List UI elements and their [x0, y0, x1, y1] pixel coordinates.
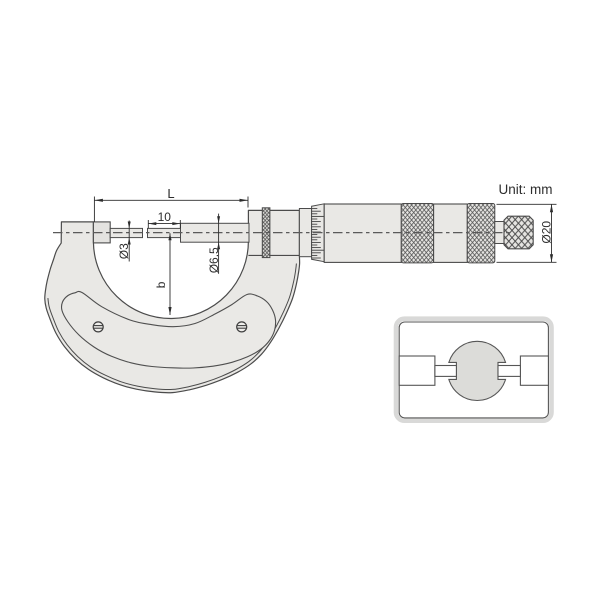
svg-text:L: L: [167, 186, 174, 201]
svg-text:Ø3: Ø3: [117, 243, 131, 259]
svg-text:10: 10: [158, 210, 172, 224]
svg-text:b: b: [154, 281, 168, 288]
svg-text:Ø6.5: Ø6.5: [207, 247, 221, 273]
svg-text:Ø20: Ø20: [539, 221, 553, 244]
svg-text:Unit: mm: Unit: mm: [499, 182, 553, 197]
